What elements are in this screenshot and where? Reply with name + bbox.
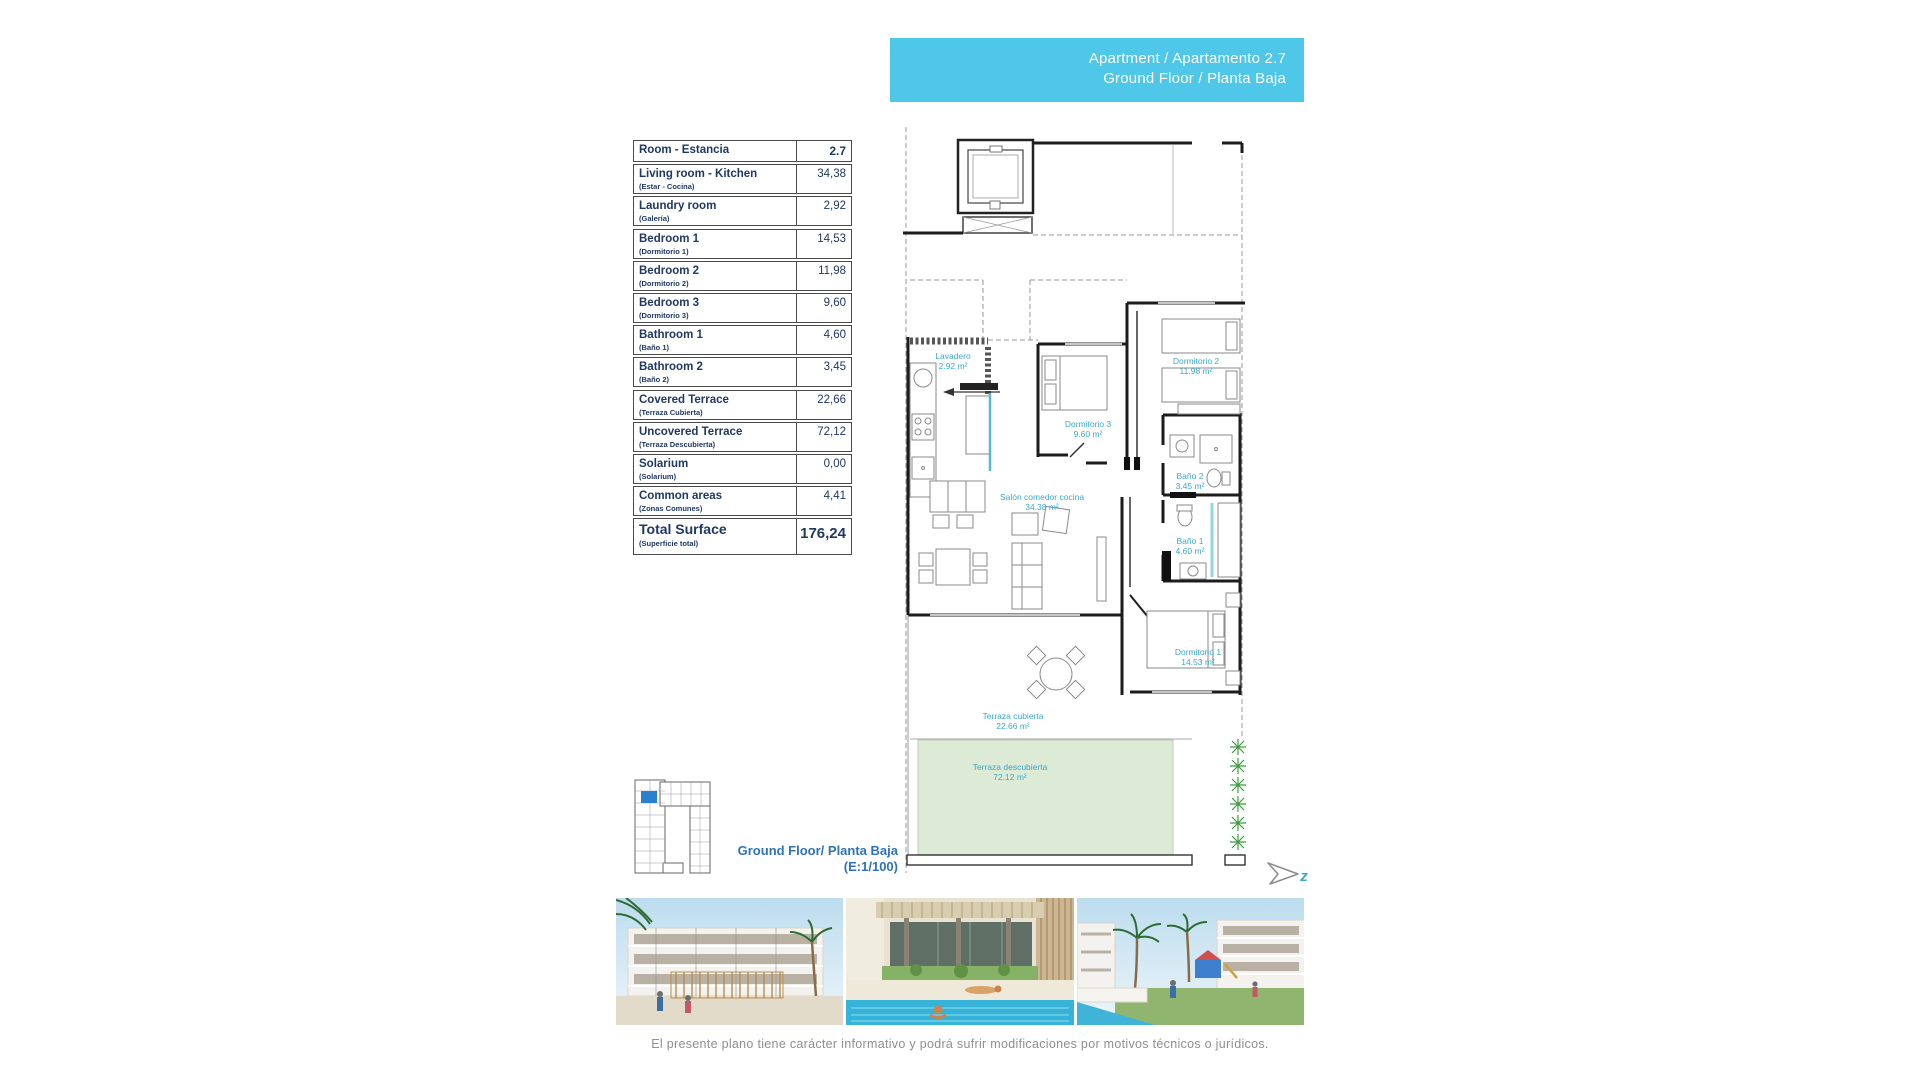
table-row: Common areas(Zonas Comunes) 4,41 <box>633 486 852 516</box>
key-plan-svg <box>633 773 718 876</box>
table-header-value: 2.7 <box>796 141 851 161</box>
bedroom3-furniture <box>1042 356 1107 410</box>
row-label: Common areas <box>639 490 794 502</box>
stairs <box>963 217 1032 233</box>
elevator-core <box>958 140 1033 213</box>
room-area-table: Room - Estancia 2.7 Living room - Kitche… <box>633 140 852 557</box>
room-area: 9.60 m² <box>1074 429 1103 439</box>
bathroom1-radiator <box>1162 551 1171 581</box>
room-label: Terraza descubierta <box>973 762 1048 772</box>
bottom-wall <box>907 855 1192 865</box>
row-sublabel: (Dormitorio 3) <box>639 311 794 320</box>
row-sublabel: (Terraza Descubierta) <box>639 440 794 449</box>
table-header-row: Room - Estancia 2.7 <box>633 140 852 162</box>
row-value: 2,92 <box>796 197 851 225</box>
room-label: Dormitorio 1 <box>1175 647 1222 657</box>
row-label: Bathroom 1 <box>639 329 794 341</box>
row-value: 11,98 <box>796 262 851 290</box>
row-label: Covered Terrace <box>639 394 794 406</box>
row-label: Uncovered Terrace <box>639 426 794 438</box>
room-area: 3.45 m² <box>1176 481 1205 491</box>
room-label: Dormitorio 2 <box>1173 356 1220 366</box>
living-furniture <box>1012 506 1106 609</box>
row-sublabel: (Galería) <box>639 214 794 223</box>
row-label: Living room - Kitchen <box>639 168 794 180</box>
entry-door <box>943 383 1000 454</box>
north-arrow-icon <box>1268 863 1298 884</box>
key-plan <box>633 773 718 876</box>
floor-label: Ground Floor/ Planta Baja (E:1/100) <box>738 843 898 875</box>
floor-label-line1: Ground Floor/ Planta Baja <box>738 843 898 859</box>
disclaimer-text: El presente plano tiene carácter informa… <box>0 1037 1920 1051</box>
door-leaf <box>1130 595 1148 617</box>
row-value: 4,60 <box>796 326 851 354</box>
room-area: 4.60 m² <box>1176 546 1205 556</box>
room-label: Terraza cubierta <box>983 711 1044 721</box>
total-value: 176,24 <box>796 519 851 554</box>
row-sublabel: (Baño 2) <box>639 375 794 384</box>
row-label: Bathroom 2 <box>639 361 794 373</box>
room-area: 11.98 m² <box>1180 366 1213 376</box>
room-area: 72.12 m² <box>993 772 1027 782</box>
pool-lounge-svg <box>846 898 1073 1025</box>
row-sublabel: (Solarium) <box>639 472 794 481</box>
table-row: Bedroom 2(Dormitorio 2) 11,98 <box>633 261 852 291</box>
table-row: Laundry room(Galería) 2,92 <box>633 196 852 226</box>
plan-title-line2: Ground Floor / Planta Baja <box>890 69 1286 89</box>
table-header-label: Room - Estancia <box>639 144 794 156</box>
floor-plan-svg: z Lavadero 2.92 m² Dormitorio 3 9.60 m² … <box>900 125 1310 890</box>
plan-title-box: Apartment / Apartamento 2.7 Ground Floor… <box>890 38 1304 102</box>
total-sublabel: (Superficie total) <box>639 539 794 548</box>
table-row: Bathroom 1(Baño 1) 4,60 <box>633 325 852 355</box>
plants-strip <box>1230 739 1246 850</box>
building-floors <box>1223 926 1299 971</box>
row-sublabel: (Baño 1) <box>639 343 794 352</box>
row-label: Bedroom 3 <box>639 297 794 309</box>
door-bar <box>1170 492 1196 498</box>
door-jamb <box>1124 457 1130 470</box>
highlighted-unit <box>641 791 657 803</box>
row-value: 3,45 <box>796 358 851 386</box>
table-row: Living room - Kitchen(Estar - Cocina) 34… <box>633 164 852 194</box>
bedroom1-furniture <box>1147 593 1240 685</box>
table-row: Solarium(Solarium) 0,00 <box>633 454 852 484</box>
room-area: 2.92 m² <box>939 361 968 371</box>
row-value: 72,12 <box>796 423 851 451</box>
table-row: Uncovered Terrace(Terraza Descubierta) 7… <box>633 422 852 452</box>
row-sublabel: (Dormitorio 2) <box>639 279 794 288</box>
render-photos <box>616 898 1304 1025</box>
table-row: Bedroom 1(Dormitorio 1) 14,53 <box>633 229 852 259</box>
table-row: Covered Terrace(Terraza Cubierta) 22,66 <box>633 390 852 420</box>
row-label: Bedroom 2 <box>639 265 794 277</box>
room-label: Lavadero <box>935 351 971 361</box>
photo-street-view-render <box>616 898 843 1025</box>
uncovered-terrace-area <box>918 740 1173 855</box>
door-jamb <box>1134 457 1140 470</box>
table-total-row: Total Surface(Superficie total) 176,24 <box>633 518 852 555</box>
door-leaf <box>1070 443 1084 457</box>
row-sublabel: (Estar - Cocina) <box>639 182 794 191</box>
photo-playground-render <box>1077 898 1304 1025</box>
floor-label-line2: (E:1/100) <box>738 859 898 875</box>
row-label: Laundry room <box>639 200 794 212</box>
street-ground <box>616 996 843 1025</box>
room-label: Baño 2 <box>1177 471 1204 481</box>
row-label: Bedroom 1 <box>639 233 794 245</box>
row-sublabel: (Zonas Comunes) <box>639 504 794 513</box>
room-area: 34.38 m² <box>1025 502 1059 512</box>
playground-svg <box>1077 898 1304 1025</box>
room-area: 22.66 m² <box>996 721 1030 731</box>
floor-plan: z Lavadero 2.92 m² Dormitorio 3 9.60 m² … <box>900 125 1310 890</box>
north-label: z <box>1299 868 1308 885</box>
row-value: 0,00 <box>796 455 851 483</box>
room-label: Baño 1 <box>1177 536 1204 546</box>
row-value: 22,66 <box>796 391 851 419</box>
table-row: Bathroom 2(Baño 2) 3,45 <box>633 357 852 387</box>
plan-title-line1: Apartment / Apartamento 2.7 <box>890 49 1286 69</box>
row-value: 14,53 <box>796 230 851 258</box>
table-row: Bedroom 3(Dormitorio 3) 9,60 <box>633 293 852 323</box>
row-sublabel: (Terraza Cubierta) <box>639 408 794 417</box>
row-label: Solarium <box>639 458 794 470</box>
photo-pool-lounge-render <box>846 898 1073 1025</box>
row-sublabel: (Dormitorio 1) <box>639 247 794 256</box>
row-value: 4,41 <box>796 487 851 515</box>
row-value: 9,60 <box>796 294 851 322</box>
row-value: 34,38 <box>796 165 851 193</box>
terrace-table <box>1027 646 1084 698</box>
street-view-svg <box>616 898 843 1025</box>
room-label: Dormitorio 3 <box>1065 419 1112 429</box>
white-wall <box>1077 988 1147 1002</box>
bottom-wall-piece <box>1225 855 1245 865</box>
room-label: Salón comedor cocina <box>1000 492 1084 502</box>
room-area: 14.53 m² <box>1181 657 1215 667</box>
building-floors <box>634 934 817 984</box>
total-label: Total Surface <box>639 522 794 537</box>
